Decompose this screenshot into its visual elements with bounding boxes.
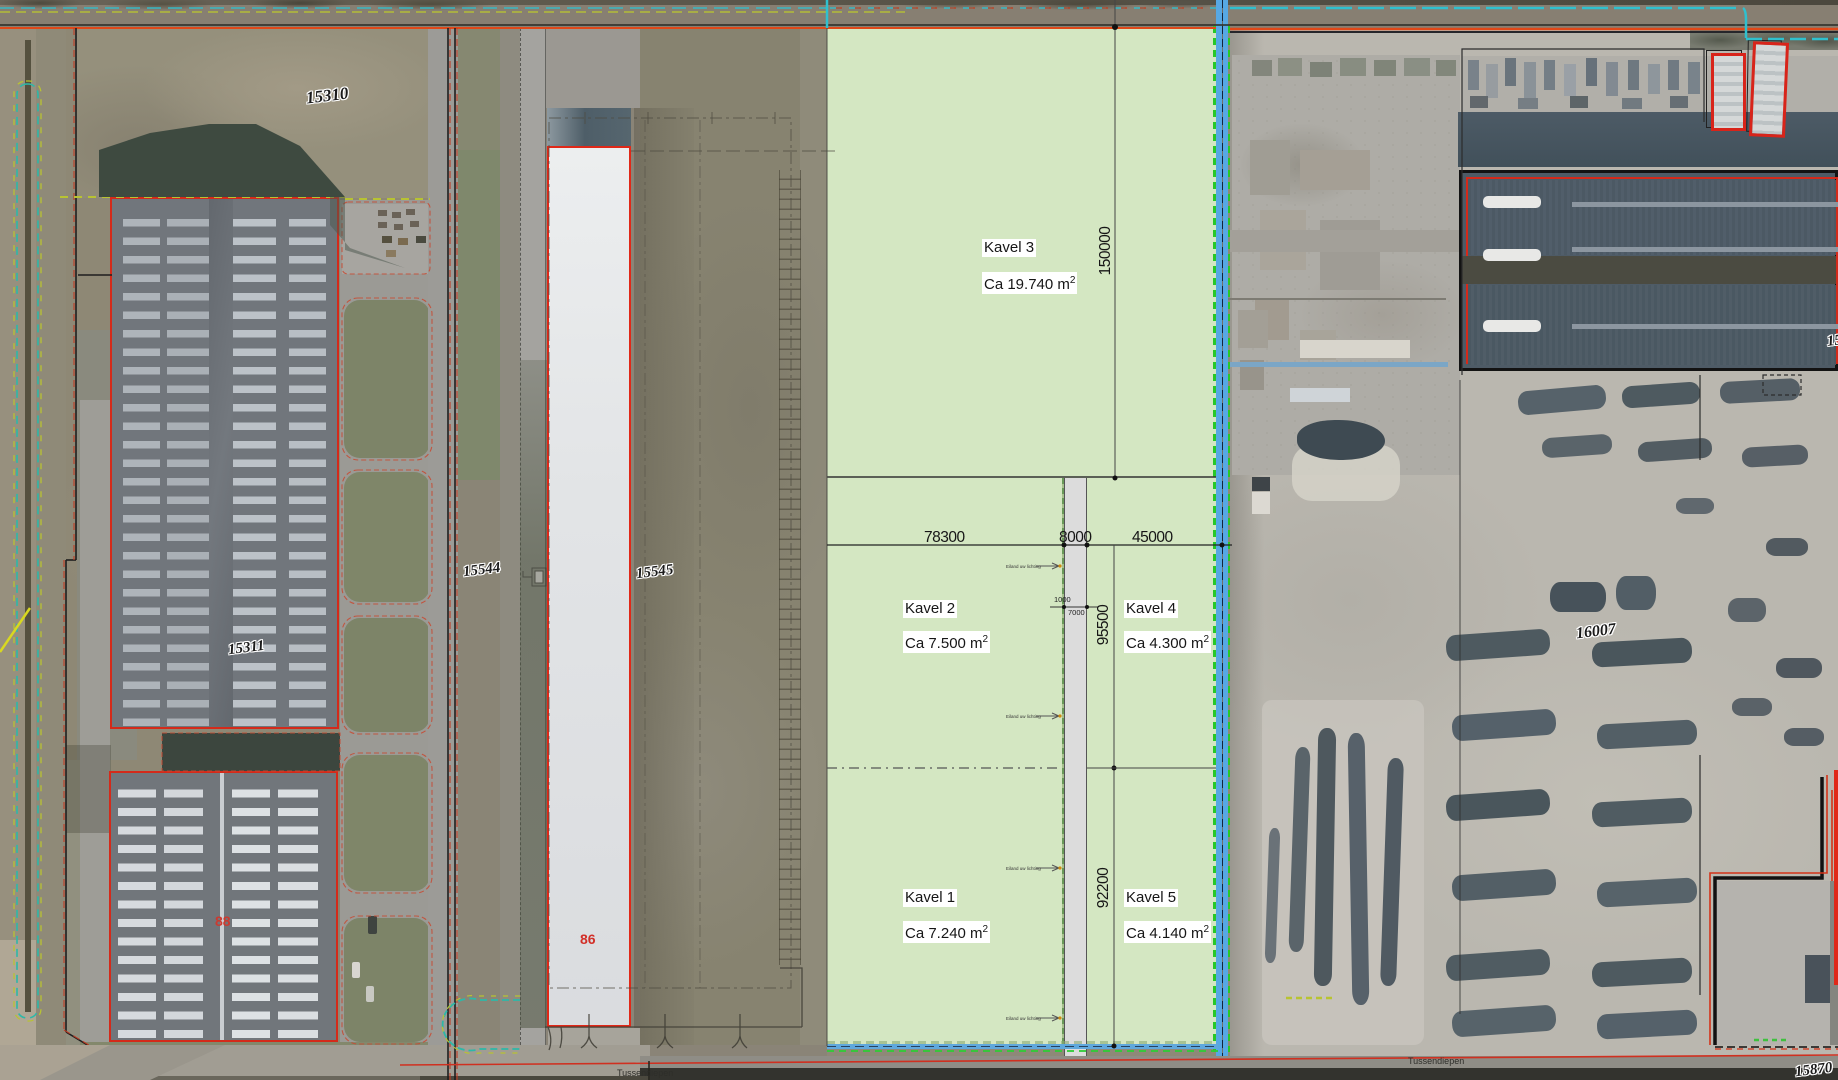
svg-text:Eiland uw lichting: Eiland uw lichting [1006,714,1041,719]
svg-text:7000: 7000 [1068,608,1085,617]
svg-text:1000: 1000 [1054,595,1071,604]
svg-text:Eiland uw lichting: Eiland uw lichting [1006,1016,1041,1021]
svg-text:Eiland uw lichting: Eiland uw lichting [1006,564,1041,569]
svg-text:Eiland uw lichting: Eiland uw lichting [1006,866,1041,871]
